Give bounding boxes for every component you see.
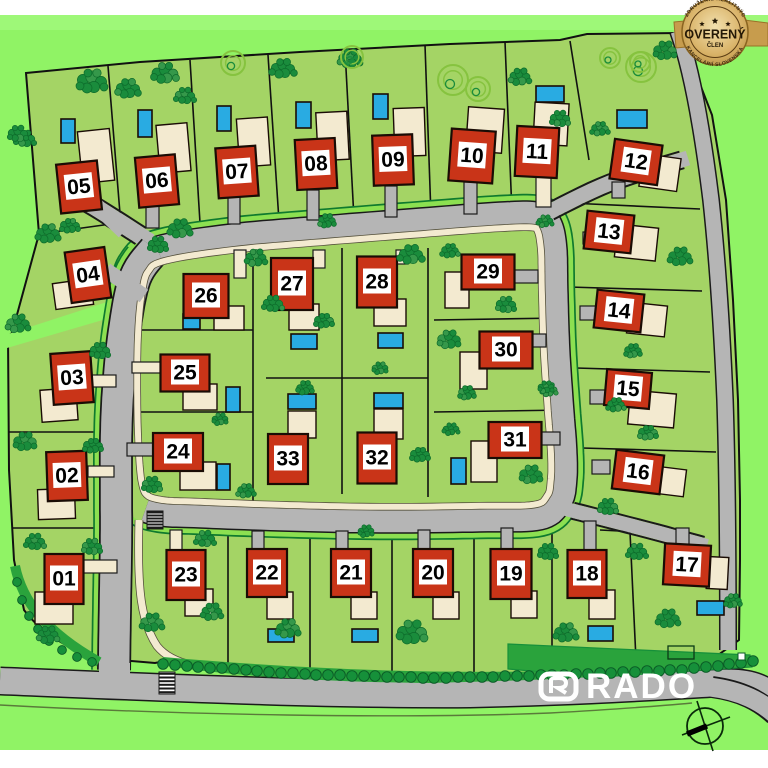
svg-text:19: 19 [499,563,522,586]
svg-text:11: 11 [525,140,549,164]
svg-text:12: 12 [623,149,649,175]
svg-text:22: 22 [255,562,278,585]
svg-text:06: 06 [144,169,169,194]
svg-text:07: 07 [225,160,250,185]
svg-text:31: 31 [503,429,527,452]
svg-text:30: 30 [494,339,517,362]
svg-text:24: 24 [166,441,190,464]
svg-text:18: 18 [575,563,599,586]
svg-text:05: 05 [66,174,92,199]
svg-text:17: 17 [675,553,700,577]
svg-text:03: 03 [60,366,85,391]
svg-text:04: 04 [75,262,102,288]
svg-text:26: 26 [194,285,217,308]
svg-text:23: 23 [174,564,197,587]
svg-text:25: 25 [173,362,197,385]
svg-text:13: 13 [596,219,622,244]
svg-text:OVERENÝ: OVERENÝ [684,27,746,42]
svg-text:29: 29 [476,261,499,284]
svg-text:08: 08 [304,152,329,176]
svg-text:16: 16 [625,459,651,485]
svg-text:28: 28 [365,271,389,294]
svg-text:10: 10 [460,144,485,169]
svg-text:33: 33 [276,448,299,471]
svg-text:20: 20 [421,562,444,585]
svg-text:01: 01 [52,568,76,591]
svg-text:27: 27 [280,273,303,296]
svg-text:09: 09 [381,148,405,172]
svg-text:ČLEN: ČLEN [707,42,723,49]
svg-text:02: 02 [55,464,79,488]
svg-text:RADO: RADO [586,667,697,706]
svg-text:14: 14 [606,298,632,323]
svg-text:21: 21 [339,562,363,585]
svg-text:32: 32 [365,447,388,470]
